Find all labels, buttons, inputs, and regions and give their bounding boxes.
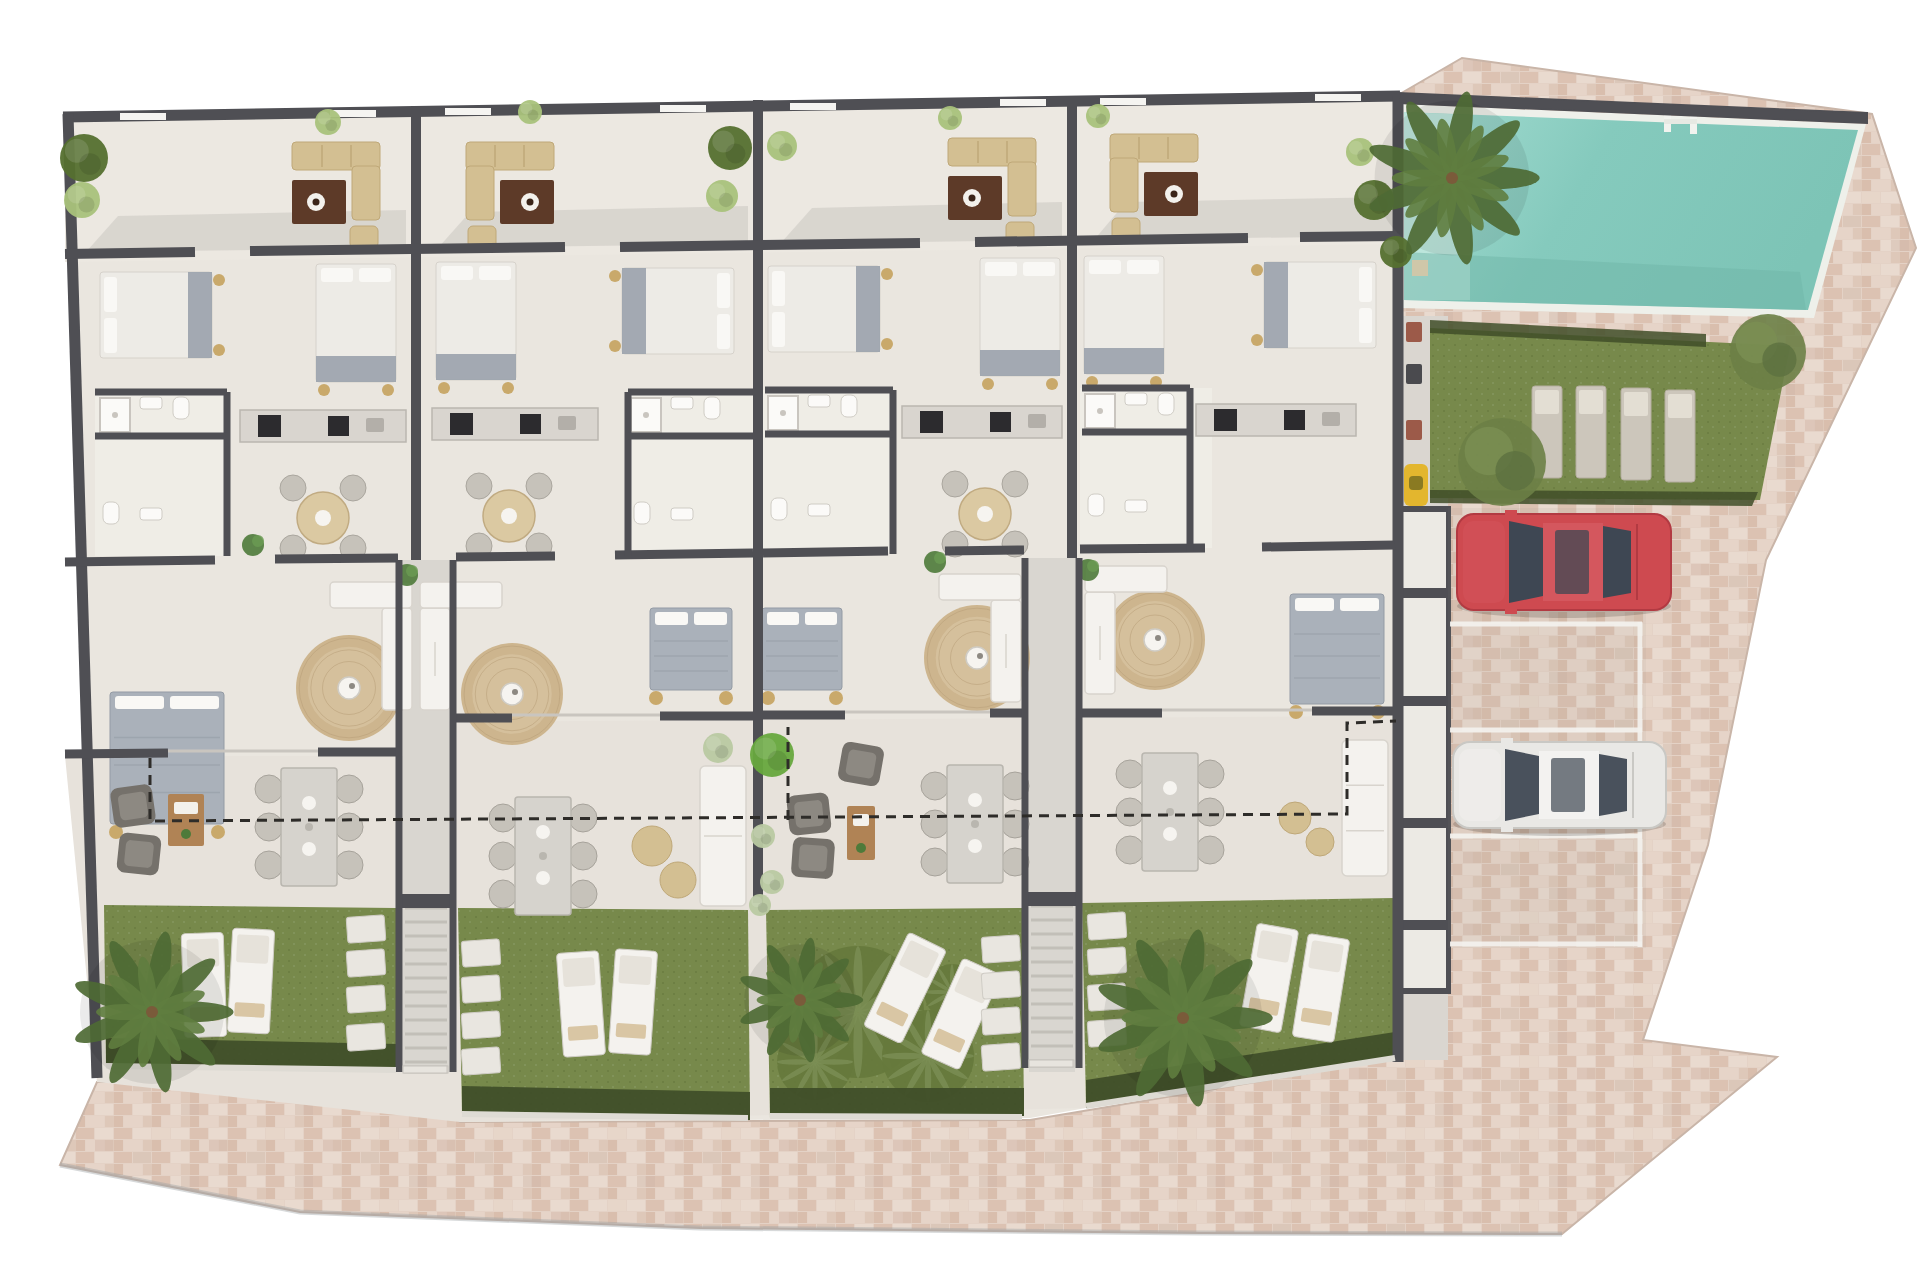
bush <box>703 733 733 763</box>
communal-lawn <box>1430 314 1806 506</box>
bathroom <box>626 392 758 556</box>
storage-niche <box>1397 924 1451 994</box>
private-garden-2 <box>458 908 750 1120</box>
living-room-rug <box>1105 590 1205 690</box>
wall <box>1080 548 1205 549</box>
kitchen-counter <box>240 410 406 442</box>
bed <box>1251 262 1376 348</box>
garden-gate <box>403 1066 447 1073</box>
pool-step <box>1412 260 1428 276</box>
outdoor-dining-table <box>489 797 597 915</box>
window <box>790 103 836 110</box>
garden-curb <box>462 1114 748 1118</box>
gray-double-bed <box>761 608 843 705</box>
outdoor-dining-table <box>921 765 1029 883</box>
lawn-tree <box>1458 418 1546 506</box>
wall <box>945 550 1024 551</box>
garden-gate <box>1029 1060 1073 1067</box>
kitchen-counter <box>1196 404 1356 436</box>
wall <box>456 556 555 557</box>
gray-double-bed <box>649 608 733 705</box>
bush <box>749 894 771 916</box>
stepping-stone <box>346 915 386 944</box>
stepping-stone <box>461 975 501 1004</box>
living-room-rug <box>461 643 563 745</box>
window <box>660 105 706 112</box>
stepping-stone <box>461 939 501 968</box>
outdoor-dining-table <box>1116 753 1224 871</box>
window <box>1100 98 1146 105</box>
stepping-stone <box>346 985 386 1014</box>
stepping-stone <box>981 1007 1021 1036</box>
wall <box>65 753 168 754</box>
stepping-stone <box>1087 912 1127 941</box>
stepping-stone <box>461 1047 501 1076</box>
wall <box>65 252 195 254</box>
wall <box>763 551 888 553</box>
door-mat <box>1406 364 1422 384</box>
lawn-sunbed <box>1621 388 1651 480</box>
yellow-scooter <box>1404 464 1428 506</box>
window <box>1315 94 1361 101</box>
pool-ladder <box>1690 116 1697 134</box>
stair-corridor <box>1025 558 1081 1072</box>
armchair <box>109 783 156 828</box>
potted-plant <box>924 551 946 573</box>
bush <box>315 109 341 135</box>
potted-plant <box>242 534 264 556</box>
bush <box>751 824 775 848</box>
red-car <box>1457 510 1671 618</box>
storage-niche <box>1397 700 1451 824</box>
wall <box>1300 236 1398 237</box>
bush <box>1346 138 1374 166</box>
white-car <box>1453 738 1666 836</box>
bathroom <box>763 390 895 552</box>
green-tree <box>750 733 794 777</box>
door-mat <box>1406 322 1422 342</box>
bush <box>708 126 752 170</box>
storage-niche <box>1397 592 1451 702</box>
bed <box>436 262 516 394</box>
wall <box>1262 545 1395 547</box>
armchair <box>791 837 836 880</box>
bush <box>518 100 542 124</box>
storage-niche <box>1397 506 1451 594</box>
bush <box>938 106 962 130</box>
gray-double-bed <box>1289 594 1385 719</box>
stepping-stone <box>461 1011 501 1040</box>
bed <box>609 268 734 354</box>
garden-lounger <box>227 928 274 1034</box>
wall <box>975 238 1248 242</box>
floor-plan-canvas <box>0 0 1920 1280</box>
kitchen-counter <box>432 408 598 440</box>
bathroom <box>95 392 227 556</box>
wall <box>615 553 753 555</box>
bush <box>706 180 738 212</box>
stepping-stone <box>981 1043 1021 1072</box>
armchair <box>837 741 885 788</box>
storage-niche <box>1397 822 1451 926</box>
stepping-stone <box>346 1023 386 1052</box>
wall <box>275 558 398 559</box>
bed <box>768 266 893 352</box>
bush <box>767 131 797 161</box>
parking-area <box>1448 508 1671 948</box>
stepping-stone <box>981 971 1021 1000</box>
bush <box>60 134 108 182</box>
lawn-tree <box>1730 314 1806 390</box>
bed <box>980 258 1060 390</box>
bed <box>100 272 225 358</box>
window <box>120 113 166 120</box>
door-mat <box>1406 420 1422 440</box>
garden-lounger <box>556 951 605 1058</box>
wall <box>250 247 565 251</box>
wall <box>65 560 215 562</box>
outdoor-dining-table <box>255 768 363 886</box>
armchair <box>116 832 162 876</box>
garden-curb <box>770 1116 1022 1117</box>
bush <box>64 182 100 218</box>
lawn-sunbed <box>1576 386 1606 478</box>
lawn-sunbed <box>1665 390 1695 482</box>
kitchen-counter <box>902 406 1062 438</box>
wall <box>620 243 920 247</box>
window <box>1000 99 1046 106</box>
floor-plan-page <box>0 0 1920 1280</box>
stepping-stone <box>981 935 1021 964</box>
armchair <box>786 792 832 836</box>
window <box>445 108 491 115</box>
bush <box>760 870 784 894</box>
bush <box>1086 104 1110 128</box>
stepping-stone <box>346 949 386 978</box>
bed <box>1084 256 1164 388</box>
bed <box>316 264 396 396</box>
garden-lounger <box>608 949 657 1056</box>
